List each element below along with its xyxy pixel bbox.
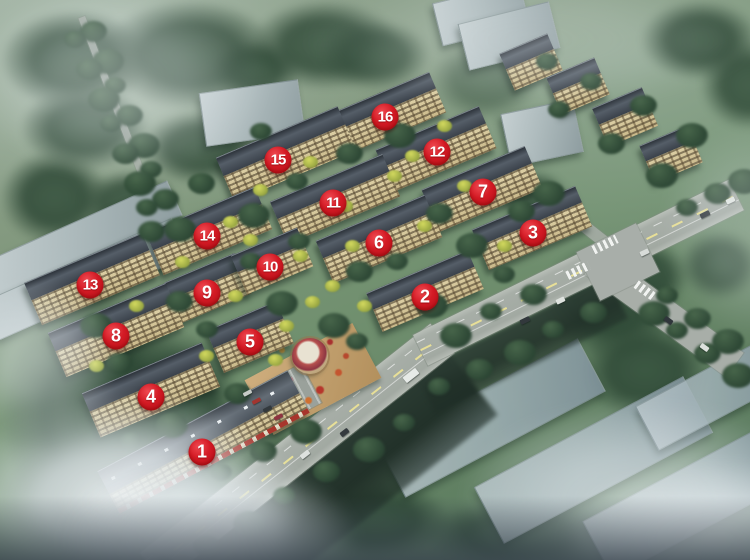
building-marker-16[interactable]: 16 <box>372 104 399 131</box>
building-marker-12[interactable]: 12 <box>424 139 451 166</box>
building-marker-5[interactable]: 5 <box>237 329 264 356</box>
building-marker-10[interactable]: 10 <box>257 254 284 281</box>
building-marker-9[interactable]: 9 <box>194 280 221 307</box>
building-markers-layer: 12345678910111213141516 <box>0 0 750 560</box>
building-marker-13[interactable]: 13 <box>77 272 104 299</box>
building-marker-2[interactable]: 2 <box>412 284 439 311</box>
building-marker-11[interactable]: 11 <box>320 190 347 217</box>
building-marker-4[interactable]: 4 <box>138 384 165 411</box>
building-marker-3[interactable]: 3 <box>520 220 547 247</box>
building-marker-7[interactable]: 7 <box>470 179 497 206</box>
building-marker-15[interactable]: 15 <box>265 147 292 174</box>
building-marker-6[interactable]: 6 <box>366 230 393 257</box>
building-marker-8[interactable]: 8 <box>103 323 130 350</box>
building-marker-1[interactable]: 1 <box>189 439 216 466</box>
aerial-site-plan: 12345678910111213141516 <box>0 0 750 560</box>
building-marker-14[interactable]: 14 <box>194 223 221 250</box>
